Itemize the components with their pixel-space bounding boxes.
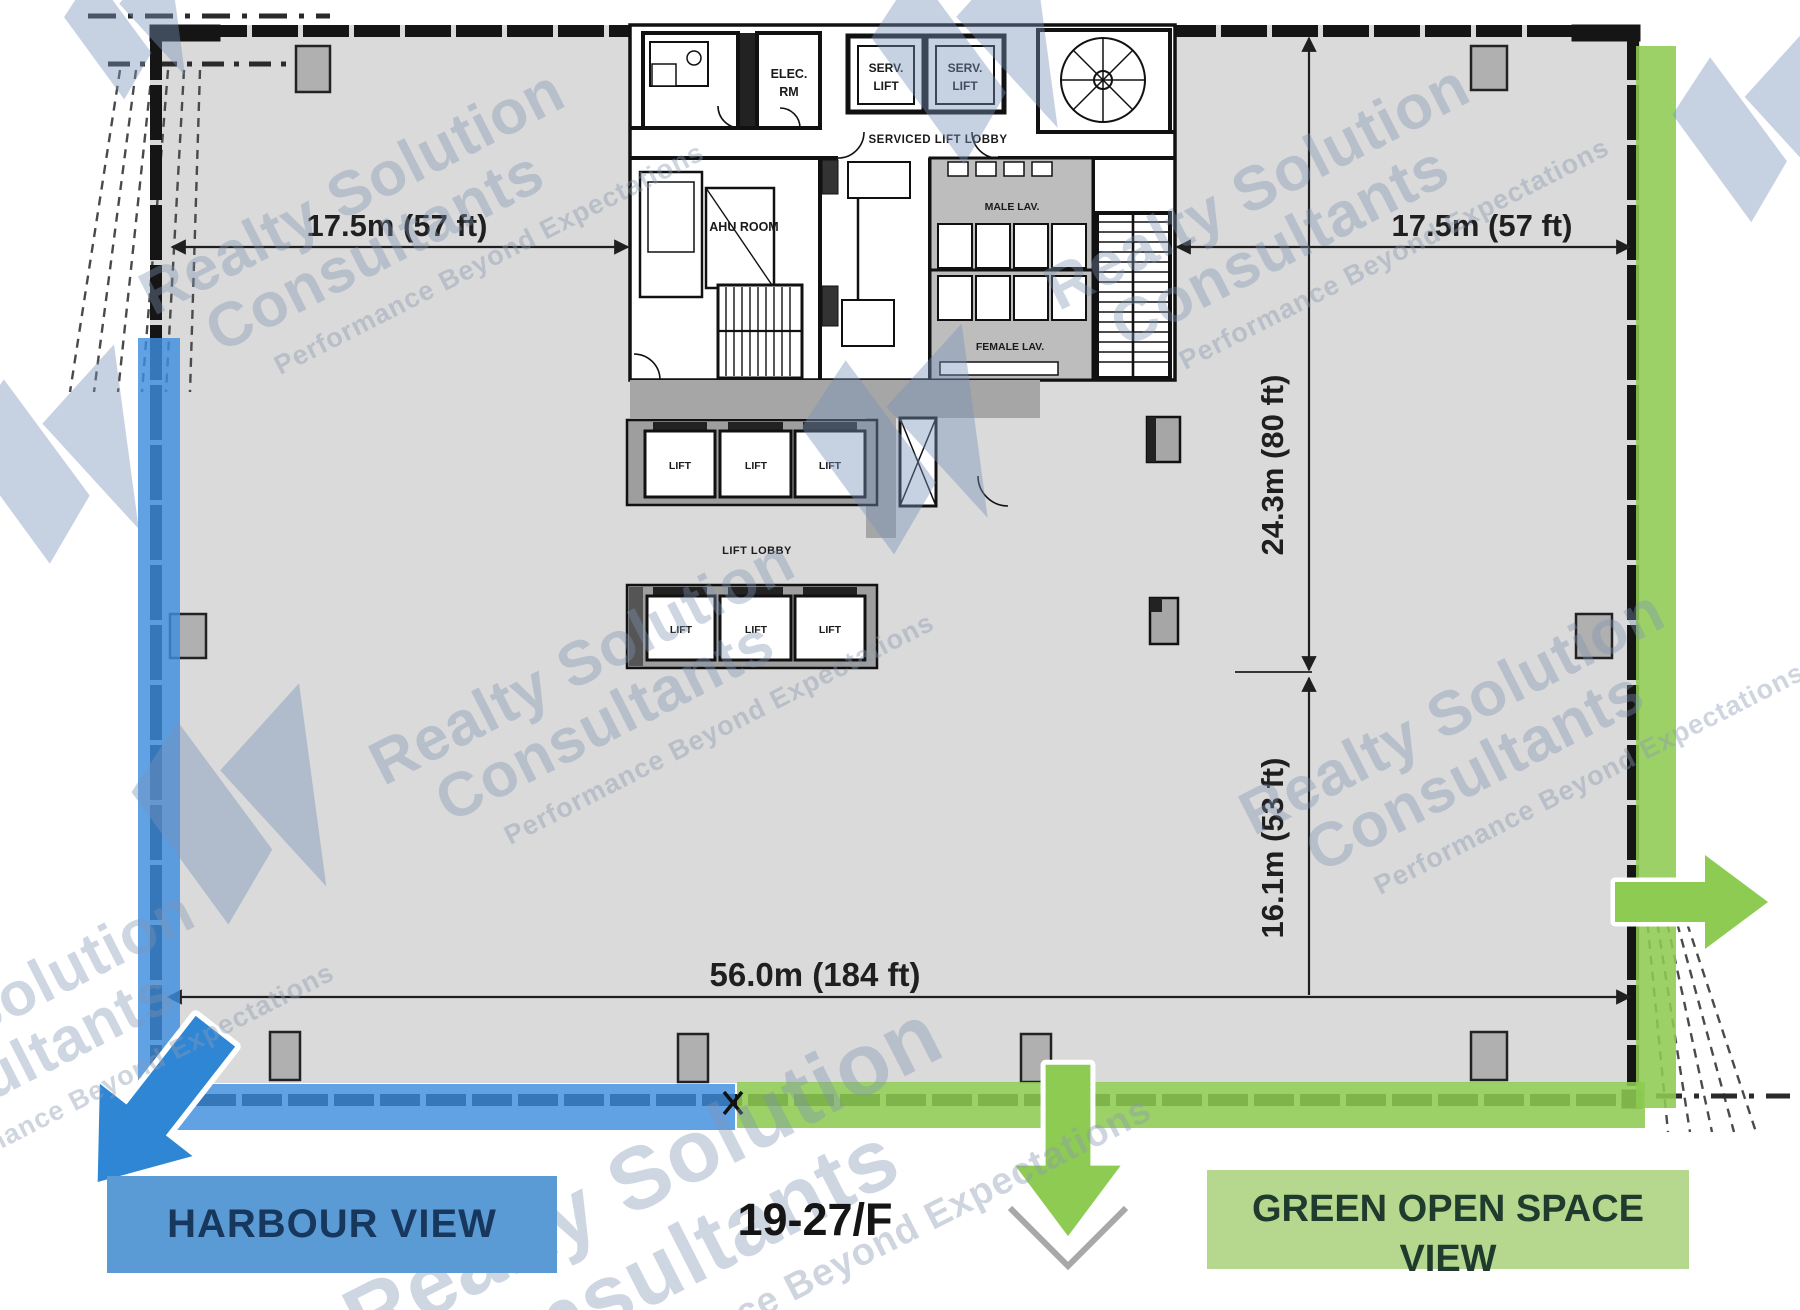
lift-bank-2: LIFT LIFT LIFT [627, 585, 877, 668]
lift-label: LIFT [819, 460, 842, 472]
core-right-stub [1147, 417, 1180, 462]
freestanding-column [1150, 598, 1178, 644]
right-staircase [1097, 213, 1170, 378]
floorplan-drawing: ELEC. RM SERV. LIFT SERV. LIFT SERVICED … [0, 0, 1800, 1310]
green-open-space-label-box: GREEN OPEN SPACE VIEW [1207, 1170, 1689, 1269]
floor-range-label: 19-27/F [700, 1194, 930, 1246]
elec-room-label2: RM [779, 85, 798, 99]
central-stair [718, 285, 802, 378]
pantry-room [643, 33, 738, 128]
lift-label: LIFT [745, 624, 768, 636]
corridor-horizontal [630, 380, 1040, 418]
service-lift-1: SERV. LIFT [848, 36, 924, 112]
service-lift-2: SERV. LIFT [926, 36, 1004, 112]
floorplan-page: ELEC. RM SERV. LIFT SERV. LIFT SERVICED … [0, 0, 1800, 1310]
lift-label: LIFT [745, 460, 768, 472]
riser-x-room [900, 418, 936, 506]
lift-lobby-label: LIFT LOBBY [722, 545, 792, 557]
green-bar-right [1636, 46, 1676, 1108]
dim-core-depth: 24.3m (80 ft) [1255, 375, 1290, 556]
service-lift-2-label: SERV. [948, 61, 983, 75]
elec-room-label: ELEC. [771, 67, 808, 81]
elec-room: ELEC. RM [757, 33, 820, 128]
female-lavatory: FEMALE LAV. [930, 270, 1093, 380]
dim-total-width: 56.0m (184 ft) [710, 956, 921, 993]
lift-label: LIFT [819, 624, 842, 636]
lift-bank-1: LIFT LIFT LIFT [627, 420, 877, 505]
spiral-stair [1038, 30, 1170, 132]
harbour-view-label-box: HARBOUR VIEW [107, 1176, 557, 1273]
harbour-bar-left [138, 338, 180, 1086]
male-lavatory: MALE LAV. [930, 158, 1093, 270]
ahu-room: AHU ROOM [640, 172, 779, 297]
service-lift-1-label: SERV. [869, 61, 904, 75]
serviced-lift-lobby-label: SERVICED LIFT LOBBY [869, 134, 1008, 146]
dim-left-width: 17.5m (57 ft) [307, 208, 488, 243]
harbour-bar-bottom [138, 1084, 735, 1130]
dim-right-width: 17.5m (57 ft) [1392, 208, 1573, 243]
dim-lower-depth: 16.1m (53 ft) [1255, 758, 1290, 939]
lift-label: LIFT [669, 460, 692, 472]
female-lav-label: FEMALE LAV. [976, 341, 1044, 353]
riser-shaft [740, 33, 757, 128]
service-lift-1-label2: LIFT [873, 79, 899, 93]
harbour-view-label: HARBOUR VIEW [167, 1202, 497, 1247]
ahu-room-label: AHU ROOM [709, 220, 778, 234]
male-lav-label: MALE LAV. [985, 201, 1040, 213]
lift-label: LIFT [670, 624, 693, 636]
green-view-label-line1: GREEN OPEN SPACE [1252, 1184, 1644, 1234]
green-view-label-line2: VIEW [1399, 1234, 1496, 1284]
green-bar-bottom [737, 1082, 1645, 1128]
service-lift-2-label2: LIFT [952, 79, 978, 93]
